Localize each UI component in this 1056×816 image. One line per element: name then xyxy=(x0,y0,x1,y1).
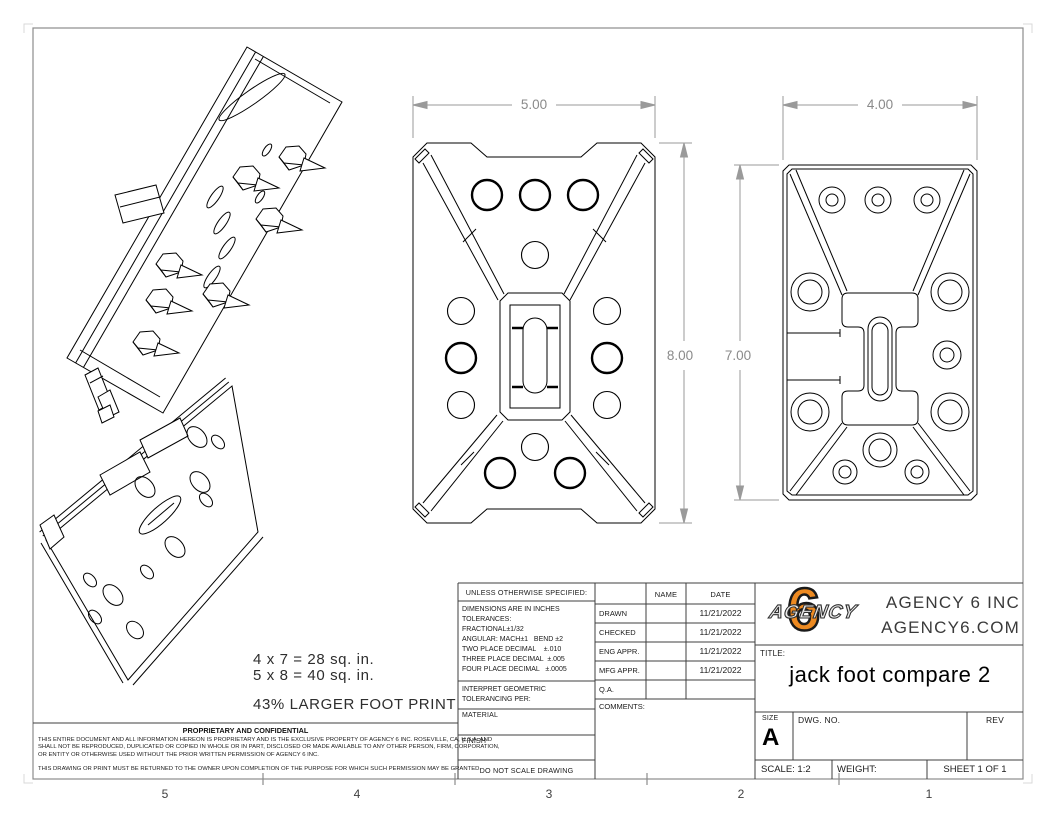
proprietary-line: THIS DRAWING OR PRINT MUST BE RETURNED T… xyxy=(38,766,456,773)
interpret-geometric: INTERPRET GEOMETRIC TOLERANCING PER: xyxy=(462,685,546,705)
scale-value: SCALE: 1:2 xyxy=(761,764,811,775)
size-value: A xyxy=(762,724,779,752)
dwg-no-label: DWG. NO. xyxy=(798,715,840,725)
title-label: TITLE: xyxy=(760,649,785,658)
company-name: AGENCY 6 INC xyxy=(868,590,1020,615)
tolerance-line: THREE PLACE DECIMAL ±.005 xyxy=(462,655,593,665)
isometric-view xyxy=(40,47,342,685)
name-header: NAME xyxy=(646,590,686,599)
iso-lower-plate xyxy=(40,378,263,685)
row-label-mfg-appr: MFG APPR. xyxy=(599,666,640,675)
row-label-checked: CHECKED xyxy=(599,628,636,637)
tolerance-line: TOLERANCES: xyxy=(462,615,593,625)
drawing-title: jack foot compare 2 xyxy=(757,662,1023,688)
dim-height-large: 8.00 xyxy=(667,348,693,363)
zone-label-1: 1 xyxy=(919,787,939,801)
rev-label: REV xyxy=(967,715,1023,725)
proprietary-line: THIS ENTIRE DOCUMENT AND ALL INFORMATION… xyxy=(38,737,456,744)
note-footprint: 43% LARGER FOOT PRINT xyxy=(253,696,456,713)
front-view-large xyxy=(413,143,655,523)
interpret-line1: INTERPRET GEOMETRIC xyxy=(462,685,546,695)
zone-label-5: 5 xyxy=(155,787,175,801)
zone-label-2: 2 xyxy=(731,787,751,801)
proprietary-body: THIS ENTIRE DOCUMENT AND ALL INFORMATION… xyxy=(38,737,456,774)
company-text: AGENCY 6 INC AGENCY6.COM xyxy=(868,590,1020,640)
zone-label-4: 4 xyxy=(347,787,367,801)
row-date-checked: 11/21/2022 xyxy=(686,627,755,637)
note-area-large: 5 x 8 = 40 sq. in. xyxy=(253,667,374,684)
material-label: MATERIAL xyxy=(462,712,498,719)
row-date-mfg-appr: 11/21/2022 xyxy=(686,665,755,675)
row-date-drawn: 11/21/2022 xyxy=(686,608,755,618)
row-label-eng-appr: ENG APPR. xyxy=(599,647,639,656)
tolerance-header: UNLESS OTHERWISE SPECIFIED: xyxy=(458,588,595,597)
zone-label-3: 3 xyxy=(539,787,559,801)
iso-upper-plate xyxy=(67,47,342,423)
agency6-logo: 6 AGENCY xyxy=(757,585,869,641)
dim-height-small: 7.00 xyxy=(725,348,751,363)
dim-width-small: 4.00 xyxy=(867,97,893,112)
comments-label: COMMENTS: xyxy=(599,702,645,711)
tolerance-line: DIMENSIONS ARE IN INCHES xyxy=(462,605,593,615)
tolerance-line: ANGULAR: MACH±1 BEND ±2 xyxy=(462,635,593,645)
proprietary-line: OR ENTITY OR OTHERWISE USED WITHOUT THE … xyxy=(38,752,456,759)
front-view-small xyxy=(783,165,977,500)
note-area-small: 4 x 7 = 28 sq. in. xyxy=(253,651,374,668)
tolerance-lines: DIMENSIONS ARE IN INCHES TOLERANCES: FRA… xyxy=(462,605,593,675)
proprietary-header: PROPRIETARY AND CONFIDENTIAL xyxy=(33,726,458,735)
company-website: AGENCY6.COM xyxy=(868,615,1020,640)
sheet-count: SHEET 1 OF 1 xyxy=(927,764,1023,775)
size-label: SIZE xyxy=(762,715,778,722)
tolerance-line: FOUR PLACE DECIMAL ±.0005 xyxy=(462,665,593,675)
date-header: DATE xyxy=(686,590,755,599)
proprietary-line: SHALL NOT BE REPRODUCED, DUPLICATED OR C… xyxy=(38,744,456,751)
row-label-qa: Q.A. xyxy=(599,685,614,694)
tolerance-line: TWO PLACE DECIMAL ±.010 xyxy=(462,645,593,655)
row-label-drawn: DRAWN xyxy=(599,609,627,618)
drawing-sheet: 5.00 8.00 4.00 7.00 xyxy=(0,0,1056,816)
tolerance-line: FRACTIONAL±1/32 xyxy=(462,625,593,635)
dimension-labels: 5.00 8.00 4.00 7.00 xyxy=(521,97,893,363)
row-date-eng-appr: 11/21/2022 xyxy=(686,646,755,656)
weight-label: WEIGHT: xyxy=(837,764,877,775)
logo-agency-text: AGENCY xyxy=(755,602,871,624)
interpret-line2: TOLERANCING PER: xyxy=(462,695,546,705)
dim-width-large: 5.00 xyxy=(521,97,547,112)
